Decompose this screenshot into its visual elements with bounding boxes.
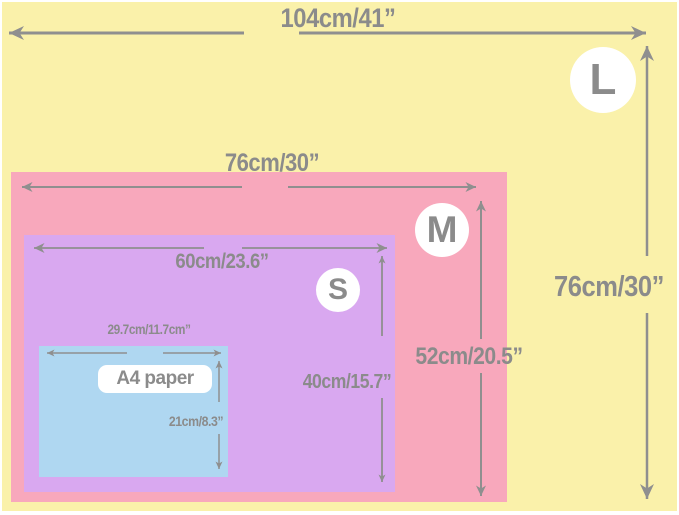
s-height-label: 40cm/15.7”: [302, 372, 392, 393]
size-l-badge-letter: L: [590, 55, 617, 105]
l-height-label: 76cm/30”: [554, 272, 665, 302]
m-width-label: 76cm/30”: [219, 150, 325, 176]
size-s-badge-letter: S: [328, 273, 348, 307]
l-width-label: 104cm/41”: [250, 4, 426, 32]
s-width-label: 60cm/23.6”: [169, 251, 275, 273]
m-height-label: 52cm/20.5”: [414, 344, 525, 369]
a4-height-label: 21cm/8.3”: [164, 414, 227, 429]
size-chart-diagram: 104cm/41” 76cm/30” 76cm/30” 52cm/20.5” 6…: [0, 0, 679, 515]
size-s-badge: S: [316, 268, 360, 312]
size-l-badge: L: [570, 47, 636, 113]
a4-paper-label-text: A4 paper: [116, 368, 193, 390]
size-m-badge: M: [415, 203, 469, 257]
a4-width-label: 29.7cm/11.7cm”: [105, 323, 193, 337]
size-m-badge-letter: M: [427, 209, 458, 251]
a4-paper-label: A4 paper: [98, 365, 212, 393]
